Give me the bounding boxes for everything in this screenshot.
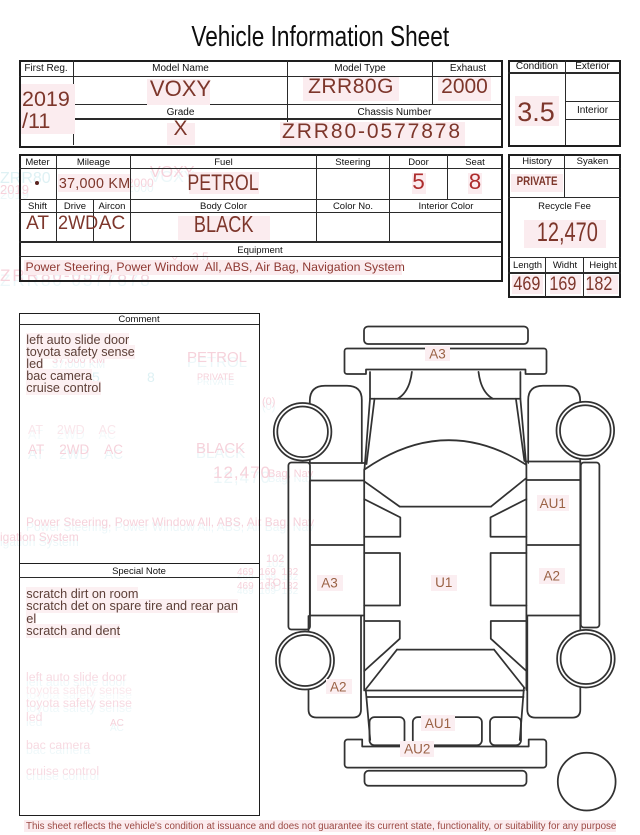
svg-text:A3: A3 (321, 575, 338, 590)
svg-text:AU1: AU1 (425, 716, 451, 731)
svg-text:A2: A2 (330, 679, 347, 694)
svg-text:A3: A3 (429, 347, 446, 362)
svg-text:AU2: AU2 (404, 741, 430, 756)
svg-text:AU1: AU1 (540, 496, 566, 511)
svg-text:A2: A2 (543, 569, 560, 584)
svg-text:U1: U1 (435, 575, 452, 590)
